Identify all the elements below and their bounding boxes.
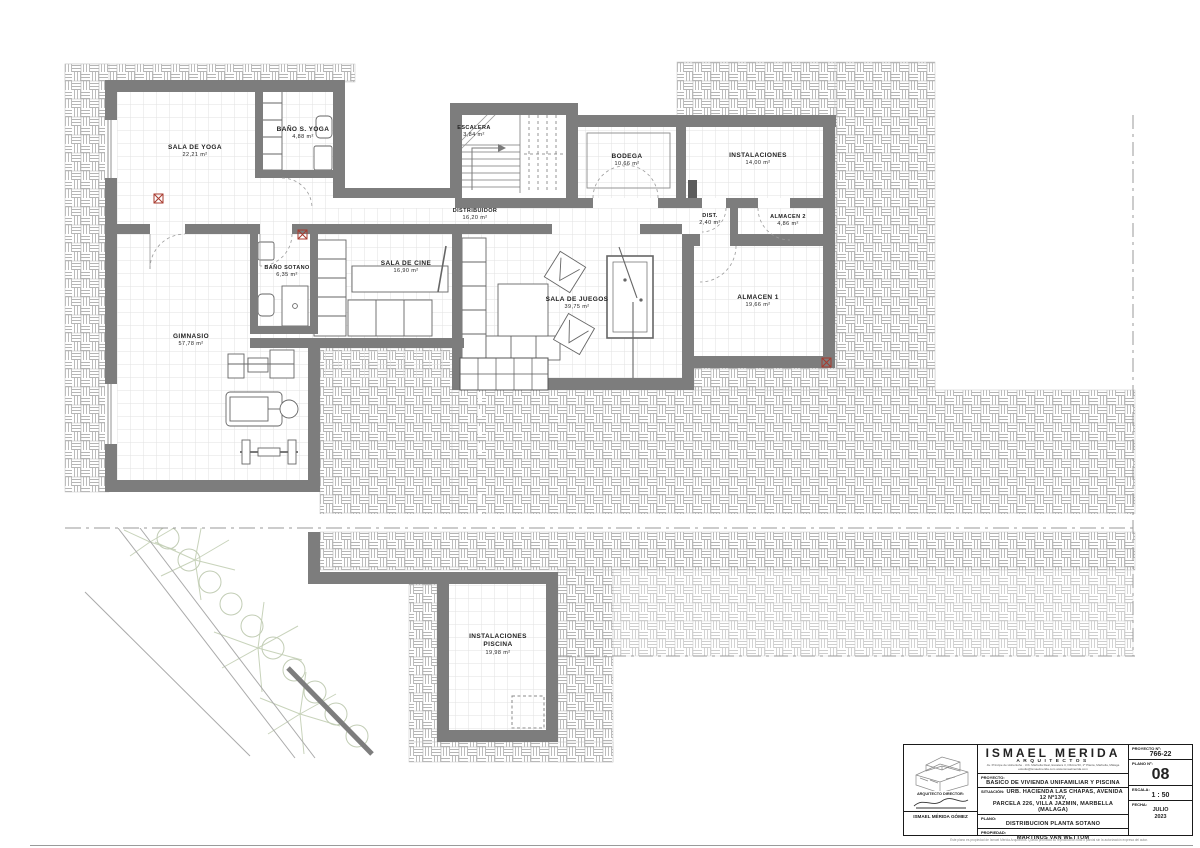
firm-logo-row: ISMAEL MERIDA ARQUITECTOS Av. Príncipe d… (978, 745, 1128, 774)
room-label-gimnasio: GIMNASIO57,78 m² (173, 333, 209, 349)
room-label-distribuidor: DISTRIBUIDOR16,20 m² (453, 208, 498, 222)
room-label-sala-de-juegos: SALA DE JUEGOS39,75 m² (546, 296, 609, 312)
plano-value: DISTRIBUCION PLANTA SOTANO (981, 821, 1125, 827)
room-label-bano-s-yoga: BAÑO S. YOGA4,88 m² (277, 126, 330, 142)
situacion-value-2: PARCELA 226, VILLA JAZMIN, MARBELLA (MAL… (981, 801, 1125, 813)
situacion-label: SITUACIÓN: (981, 789, 1004, 794)
room-label-almacen-1: ALMACEN 119,66 m² (737, 294, 779, 310)
firm-name: ISMAEL MERIDA (981, 747, 1125, 759)
title-block-center-column: ISMAEL MERIDA ARQUITECTOS Av. Príncipe d… (978, 745, 1129, 835)
escala-value: 1 : 50 (1132, 792, 1189, 799)
skylight-window (460, 358, 548, 390)
house-sketch (906, 745, 976, 791)
room-label-almacen-2: ALMACEN 24,86 m² (770, 214, 806, 228)
title-block: ARQUITECTO DIRECTOR: ISMAEL MÉRIDA GÓMEZ… (903, 744, 1193, 836)
situacion-row: SITUACIÓN: URB. HACIENDA LAS CHAPAS, AVE… (978, 788, 1128, 815)
proyecto-value: BASICO DE VIVIENDA UNIFAMILIAR Y PISCINA (981, 780, 1125, 786)
room-label-instalaciones-piscina: INSTALACIONES PISCINA 19,98 m² (469, 633, 527, 657)
plano-no-value: 08 (1132, 766, 1189, 784)
title-block-right-column: PROYECTO Nº: 766-22 PLANO Nº: 08 ESCALA:… (1129, 745, 1192, 835)
games-rug (498, 284, 548, 336)
floor-plan-drawing (0, 0, 1200, 848)
title-block-architect-column: ARQUITECTO DIRECTOR: ISMAEL MÉRIDA GÓMEZ (904, 745, 978, 835)
staircase (452, 106, 578, 193)
room-label-sala-de-yoga: SALA DE YOGA22,21 m² (168, 144, 222, 160)
room-label-escalera: ESCALERA3,84 m² (457, 125, 490, 139)
escala-row: ESCALA: 1 : 50 (1129, 786, 1192, 801)
plano-row: PLANO: DISTRIBUCION PLANTA SOTANO (978, 815, 1128, 829)
architect-director-name: ISMAEL MÉRIDA GÓMEZ (904, 811, 977, 819)
cinema-shelf (314, 240, 346, 336)
room-label-sala-de-cine: SALA DE CINE16,90 m² (381, 260, 431, 276)
room-label-instalaciones: INSTALACIONES14,00 m² (729, 152, 787, 168)
room-label-bodega: BODEGA10,66 m² (612, 153, 643, 169)
proyecto-row: PROYECTO: BASICO DE VIVIENDA UNIFAMILIAR… (978, 774, 1128, 788)
palm-frond (124, 518, 340, 754)
plano-no-row: PLANO Nº: 08 (1129, 760, 1192, 786)
room-label-bano-sotano: BAÑO SOTANO6,35 m² (264, 265, 309, 279)
fecha-year: 2023 (1132, 814, 1189, 820)
proyecto-no-value: 766-22 (1132, 751, 1189, 758)
copyright-note: Este plano es propiedad de Ismael Mérida… (905, 838, 1193, 842)
drawing-sheet: SALA DE YOGA22,21 m² BAÑO S. YOGA4,88 m²… (0, 0, 1200, 848)
fecha-row: FECHA: JULIO 2023 (1129, 801, 1192, 821)
room-label-dist: DIST.2,40 m² (699, 213, 720, 227)
sheet-border-line (30, 845, 1193, 846)
proyecto-no-row: PROYECTO Nº: 766-22 (1129, 745, 1192, 760)
signature (910, 796, 972, 810)
cinema-sofa (348, 300, 432, 336)
firm-contact: estudio@ismaelmerida.com www.ismaelmerid… (981, 768, 1125, 772)
